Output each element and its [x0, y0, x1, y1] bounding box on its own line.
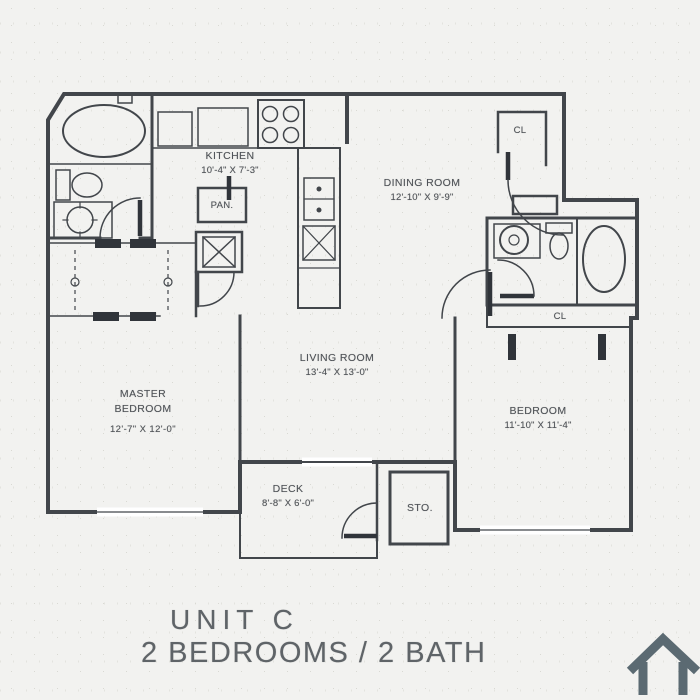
house-icon — [0, 0, 700, 700]
floor-plan-page: { "colors": { "line": "#42464b", "dark":… — [0, 0, 700, 700]
